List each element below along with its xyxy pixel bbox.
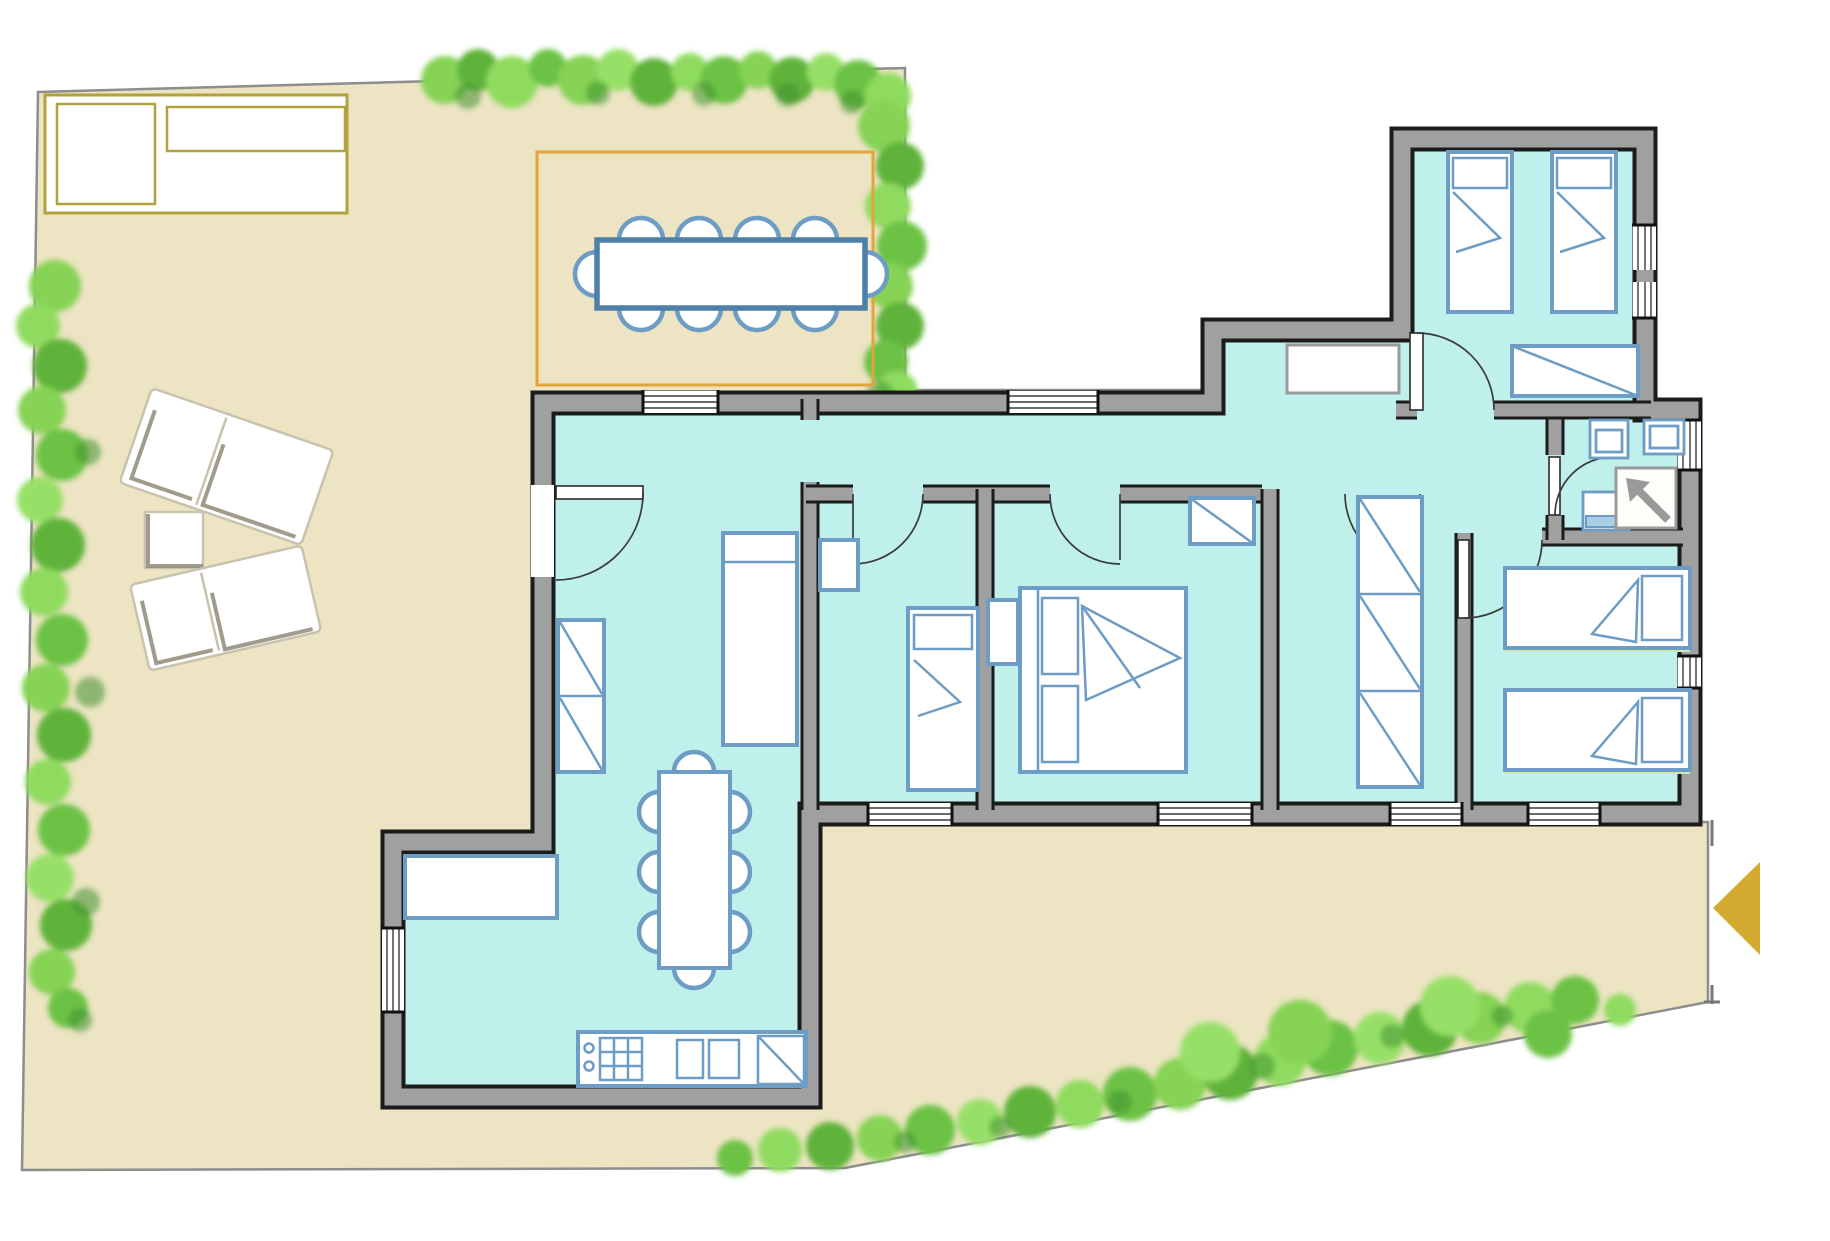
- daybed: [723, 533, 797, 745]
- window-south-4: [1528, 802, 1600, 826]
- entrance-arrow-icon: [1713, 862, 1760, 955]
- wardrobe: [1512, 346, 1638, 396]
- single-bed: [1448, 152, 1512, 312]
- washbasin: [1590, 420, 1628, 458]
- outdoor-dining-table: [597, 240, 865, 308]
- window-east-2: [1677, 656, 1702, 688]
- garden-side-table: [145, 512, 203, 568]
- legend: [45, 95, 347, 213]
- legend-title-bar: [167, 107, 345, 151]
- legend-key-square: [57, 104, 155, 204]
- double-bed: [1020, 588, 1186, 774]
- nightstand: [820, 540, 858, 590]
- closet: [1190, 498, 1254, 544]
- window-south-2: [1158, 802, 1252, 826]
- wall-wardrobe: [558, 620, 604, 772]
- floor-plan-page: [0, 0, 1830, 1241]
- window-top-1: [643, 390, 718, 414]
- nightstand: [988, 600, 1018, 664]
- window-wing-east-1: [1632, 225, 1657, 270]
- window-wing-east-2: [1632, 282, 1657, 318]
- single-bed: [1505, 690, 1690, 774]
- sofa: [405, 856, 557, 918]
- window-top-2: [1008, 390, 1098, 414]
- wardrobe-column: [1358, 497, 1422, 787]
- indoor-dining-table: [659, 772, 730, 968]
- single-bed: [1505, 568, 1690, 652]
- window-south-1: [868, 802, 952, 826]
- toilet: [1644, 420, 1684, 454]
- shower: [1616, 468, 1676, 528]
- window-west-living: [381, 928, 405, 1012]
- floor-plan-drawing: [0, 0, 1830, 1241]
- hallway-built-in-closet: [1287, 345, 1399, 393]
- window-south-3: [1390, 802, 1462, 826]
- kitchen-counter: [578, 1032, 806, 1086]
- wardrobe-bedroom: [1358, 497, 1422, 787]
- single-bed: [1552, 152, 1616, 312]
- single-bed: [908, 608, 978, 792]
